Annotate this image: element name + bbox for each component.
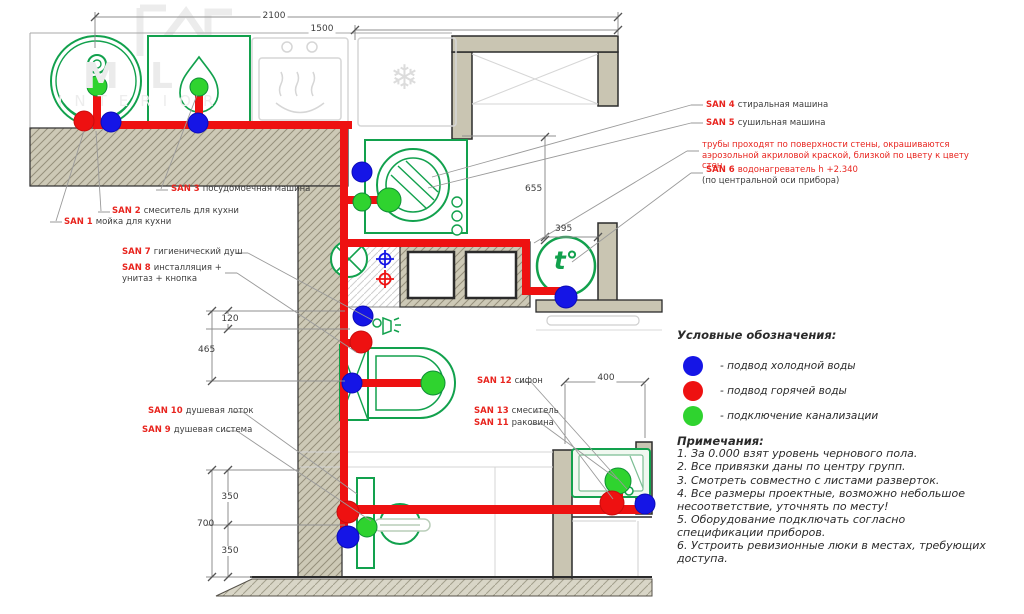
- label-san4: SAN 4стиральная машина: [706, 100, 828, 111]
- watermark-brand: INTERIOR: [58, 92, 225, 110]
- note-item-2: 2. Все привязки даны по центру групп.: [677, 461, 989, 474]
- cold-water-dot-icon: [683, 356, 703, 376]
- dim-700: 700: [197, 519, 214, 529]
- san9-number: SAN 9: [142, 425, 171, 435]
- san4-number: SAN 4: [706, 100, 735, 110]
- san13-desc: смеситель: [512, 406, 559, 416]
- san5-number: SAN 5: [706, 118, 735, 128]
- note-item-4: 4. Все размеры проектные, возможно небол…: [677, 488, 989, 514]
- legend-sewer-text: - подключение канализации: [720, 410, 878, 422]
- watermark-letter-m: M: [83, 56, 119, 97]
- san9-desc: душевая система: [174, 425, 253, 435]
- san8-desc: инсталляция +: [154, 263, 222, 273]
- notes-list: 1. За 0.000 взят уровень чернового пола.…: [677, 448, 989, 566]
- label-san9: SAN 9душевая система: [142, 425, 252, 436]
- san7-desc: гигиенический душ: [154, 247, 243, 257]
- san2-desc: смеситель для кухни: [144, 206, 239, 216]
- label-san3: SAN 3посудомоечная машина: [171, 184, 310, 195]
- san3-number: SAN 3: [171, 184, 200, 194]
- dim-395: 395: [555, 224, 572, 234]
- snowflake-icon: ❄: [390, 58, 419, 98]
- watermark-letter-l: L: [150, 56, 173, 97]
- legend-cold-text: - подвод холодной воды: [720, 360, 856, 372]
- water-heater-temp-icon: t°: [549, 246, 583, 275]
- san7-number: SAN 7: [122, 247, 151, 257]
- dim-465: 465: [198, 345, 215, 355]
- hot-water-dot-icon: [683, 381, 703, 401]
- dim-2100: 2100: [261, 11, 288, 21]
- san1-desc: мойка для кухни: [96, 217, 172, 227]
- san11-number: SAN 11: [474, 418, 509, 428]
- legend-item-cold: - подвод холодной воды: [683, 356, 856, 376]
- legend-hot-text: - подвод горячей воды: [720, 385, 847, 397]
- dim-350a: 350: [219, 492, 240, 502]
- label-san1: SAN 1мойка для кухни: [64, 217, 171, 228]
- san13-number: SAN 13: [474, 406, 509, 416]
- plumbing-plan-page: M L INTERIOR: [0, 0, 1024, 614]
- label-san11: SAN 11раковина: [474, 418, 554, 429]
- san3-desc: посудомоечная машина: [203, 184, 311, 194]
- oven-icon: [252, 38, 348, 126]
- san11-desc: раковина: [512, 418, 554, 428]
- dim-1500: 1500: [309, 24, 336, 34]
- legend-title: Условные обозначения:: [677, 328, 836, 342]
- legend-item-hot: - подвод горячей воды: [683, 381, 847, 401]
- label-san8: SAN 8инсталляция + унитаз + кнопка: [122, 263, 222, 285]
- label-san10: SAN 10душевая лоток: [148, 406, 253, 417]
- san10-number: SAN 10: [148, 406, 183, 416]
- san6-number: SAN 6: [706, 165, 735, 175]
- san10-desc: душевая лоток: [186, 406, 254, 416]
- dim-350b: 350: [219, 546, 240, 556]
- note-item-3: 3. Смотреть совместно с листами разверто…: [677, 475, 989, 488]
- san2-number: SAN 2: [112, 206, 141, 216]
- san12-number: SAN 12: [477, 376, 512, 386]
- label-san6: SAN 6водонагреватель h +2.340 (по центра…: [706, 165, 858, 187]
- label-san13: SAN 13смеситель: [474, 406, 559, 417]
- san4-desc: стиральная машина: [738, 100, 828, 110]
- label-san5: SAN 5сушильная машина: [706, 118, 825, 129]
- note-item-5: 5. Оборудование подключать согласно спец…: [677, 514, 989, 540]
- san6-sub: (по центральной оси прибора): [702, 176, 858, 187]
- label-san12: SAN 12сифон: [477, 376, 543, 387]
- san5-desc: сушильная машина: [738, 118, 826, 128]
- san6-desc: водонагреватель h +2.340: [738, 165, 858, 175]
- sewer-dot-icon: [683, 406, 703, 426]
- label-san7: SAN 7гигиенический душ: [122, 247, 242, 258]
- dim-400: 400: [595, 373, 616, 383]
- hygienic-shower-icon: [373, 318, 401, 334]
- legend-item-sewer: - подключение канализации: [683, 406, 878, 426]
- note-item-6: 6. Устроить ревизионные люки в местах, т…: [677, 540, 989, 566]
- dim-120: 120: [219, 314, 240, 324]
- san8-sub: унитаз + кнопка: [122, 274, 222, 285]
- san12-desc: сифон: [515, 376, 543, 386]
- san1-number: SAN 1: [64, 217, 93, 227]
- note-item-1: 1. За 0.000 взят уровень чернового пола.: [677, 448, 989, 461]
- label-san2: SAN 2смеситель для кухни: [112, 206, 239, 217]
- washing-machine: [365, 140, 467, 235]
- notes-title: Примечания:: [677, 434, 764, 448]
- dim-655: 655: [525, 184, 542, 194]
- san8-number: SAN 8: [122, 263, 151, 273]
